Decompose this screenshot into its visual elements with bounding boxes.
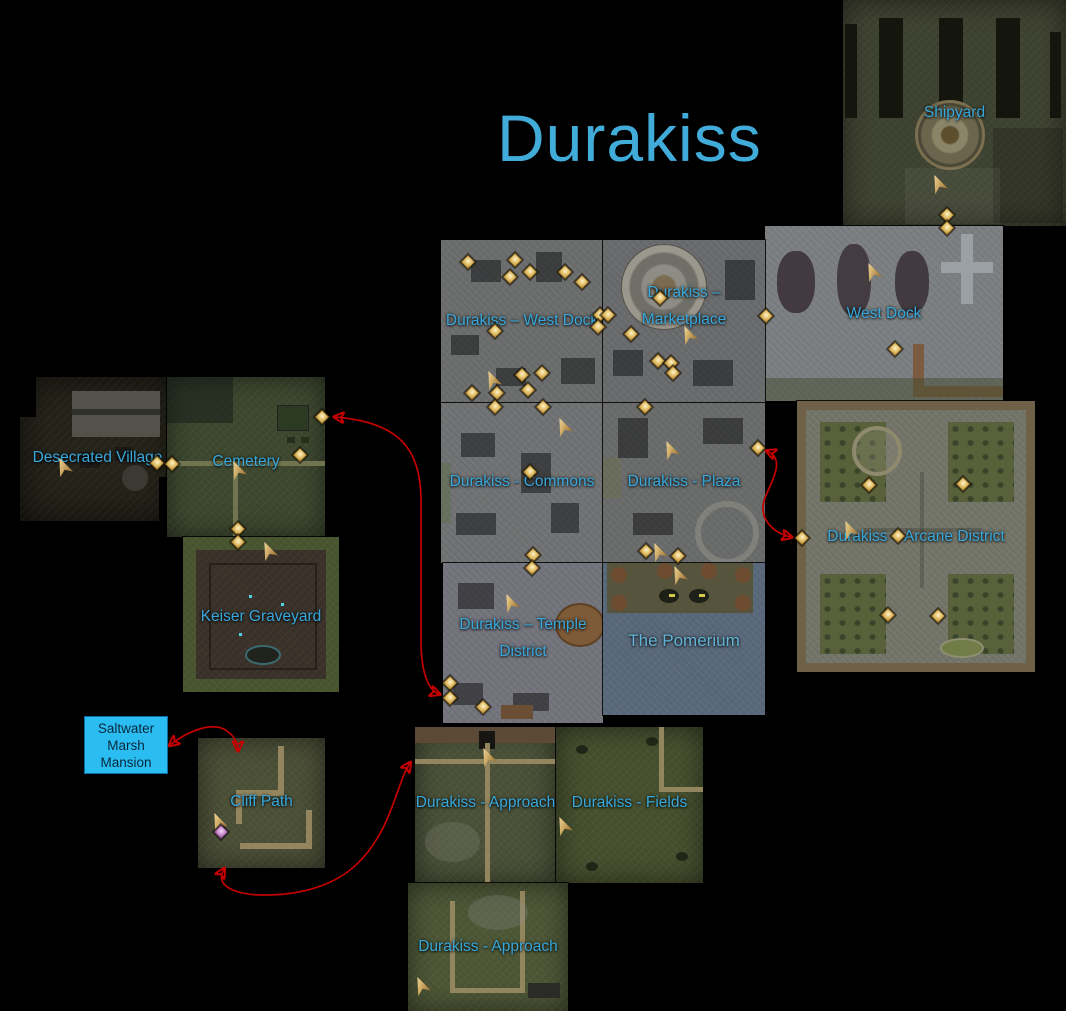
building-block <box>633 513 673 535</box>
pond <box>940 638 984 658</box>
tile-label-plaza: Durakiss - Plaza <box>603 473 765 491</box>
map-tile-keiser-graveyard: Keiser Graveyard <box>183 537 339 692</box>
map-collage: Durakiss Shipyard West Dock Durakiss – W… <box>0 0 1066 1011</box>
tree-blob <box>586 862 598 871</box>
decor-structure <box>528 983 560 998</box>
tile-label-durakiss-west-dock: Durakiss – West Dock <box>441 312 603 330</box>
tile-label-fields: Durakiss - Fields <box>556 794 703 812</box>
garden-plot <box>948 422 1014 502</box>
tree <box>735 595 751 611</box>
tree-blob <box>646 737 658 746</box>
ship-shape <box>777 251 815 313</box>
map-tile-shipyard: Shipyard <box>843 0 1066 226</box>
edge-notch <box>20 377 36 417</box>
tile-label-keiser-graveyard: Keiser Graveyard <box>183 608 339 626</box>
building-block <box>458 583 494 609</box>
map-tile-commons: Durakiss - Commons <box>441 403 603 563</box>
tree <box>701 563 717 579</box>
tile-label-marketplace-1: Durakiss – <box>603 284 765 302</box>
tile-label-shipyard: Shipyard <box>843 104 1066 122</box>
map-tile-fields: Durakiss - Fields <box>556 727 703 883</box>
grave <box>287 437 295 443</box>
building-block <box>693 360 733 386</box>
trail <box>306 810 312 849</box>
grave <box>301 437 309 443</box>
map-tile-approach-north: Durakiss - Approach <box>415 727 556 883</box>
tree <box>611 595 627 611</box>
tree <box>735 567 751 583</box>
ghost-dot <box>281 603 284 606</box>
ship-shape <box>895 251 929 313</box>
tile-label-desecrated-village: Desecrated Village <box>20 449 175 467</box>
decor-annex <box>993 128 1063 223</box>
decor-rock <box>468 895 528 930</box>
arcane-circle <box>852 426 902 476</box>
building-block <box>561 358 595 384</box>
page-title: Durakiss <box>497 100 762 176</box>
building-block <box>613 350 643 376</box>
tile-label-west-dock: West Dock <box>765 305 1003 323</box>
map-tile-plaza: Durakiss - Plaza <box>603 403 765 563</box>
trail <box>278 746 284 794</box>
building-block <box>461 433 495 457</box>
building-block <box>471 260 501 282</box>
trail <box>450 988 525 993</box>
trail <box>485 743 490 763</box>
building-block <box>703 418 743 444</box>
mansion-line-2: Marsh <box>107 737 145 754</box>
trail <box>659 727 664 790</box>
grave-plot <box>277 405 309 431</box>
trail <box>485 764 490 883</box>
map-tile-cemetery: Cemetery <box>167 377 325 537</box>
map-tile-approach-south: Durakiss - Approach <box>408 883 568 1011</box>
pomerium-map-strip <box>607 563 753 613</box>
mansion-line-1: Saltwater <box>98 720 154 737</box>
map-tile-durakiss-west-dock: Durakiss – West Dock <box>441 240 603 403</box>
plaza-circle <box>695 501 759 565</box>
map-tile-desecrated-village: Desecrated Village <box>20 377 175 521</box>
garden-plot <box>820 574 886 654</box>
decor-green-strip <box>765 378 1003 401</box>
building-block <box>451 335 479 355</box>
pier-slot <box>879 18 903 118</box>
tree <box>611 567 627 583</box>
tree-blob <box>676 852 688 861</box>
tile-label-marketplace-2: Marketplace <box>603 311 765 329</box>
building-block <box>618 418 648 458</box>
decor-greenery <box>441 463 451 523</box>
cemetery-path <box>233 465 238 537</box>
arrow-plaza-arcane <box>763 451 791 537</box>
tile-label-approach-south: Durakiss - Approach <box>408 938 568 956</box>
tile-label-commons: Durakiss - Commons <box>441 473 603 491</box>
arrow-cemetery-temple <box>335 417 439 694</box>
map-tile-arcane-district: Durakiss – Arcane District <box>797 401 1035 672</box>
building-block <box>551 503 579 533</box>
tile-label-pomerium: The Pomerium <box>603 631 765 651</box>
decor-brown-patch <box>501 705 533 719</box>
tile-label-approach-north: Durakiss - Approach <box>415 794 556 812</box>
decor-rock <box>425 822 480 862</box>
map-tile-pomerium: The Pomerium <box>603 563 765 715</box>
map-tile-west-dock: West Dock <box>765 226 1003 401</box>
pier-slot <box>996 18 1020 118</box>
decor-pillar <box>941 262 993 273</box>
building-block <box>496 368 526 386</box>
mansion-callout-box: Saltwater Marsh Mansion <box>84 716 168 774</box>
decor-pier <box>905 168 1000 224</box>
tree-blob <box>576 745 588 754</box>
map-tile-cliff-path: Cliff Path <box>198 738 325 868</box>
tile-label-temple-1: Durakiss – Temple <box>443 616 603 634</box>
tile-label-arcane-district: Durakiss – Arcane District <box>806 528 1026 546</box>
tile-label-temple-2: District <box>443 643 603 661</box>
tile-label-cemetery: Cemetery <box>167 453 325 471</box>
building-block <box>536 252 562 282</box>
tree <box>657 563 673 579</box>
tile-label-cliff-path: Cliff Path <box>198 793 325 811</box>
trail <box>659 787 703 792</box>
trail <box>240 843 312 849</box>
map-tile-temple-district: Durakiss – Temple District <box>443 563 603 723</box>
gate-tick <box>699 594 705 597</box>
ghost-dot <box>249 595 252 598</box>
building-block <box>456 513 496 535</box>
gate-tick <box>669 594 675 597</box>
map-tile-marketplace: Durakiss – Marketplace <box>603 240 765 403</box>
village-roof-ridge <box>72 409 160 415</box>
tomb <box>245 645 281 665</box>
building-block <box>453 683 483 705</box>
well <box>120 463 150 493</box>
ghost-dot <box>239 633 242 636</box>
decor-shade <box>167 377 233 423</box>
mansion-line-3: Mansion <box>100 754 151 771</box>
